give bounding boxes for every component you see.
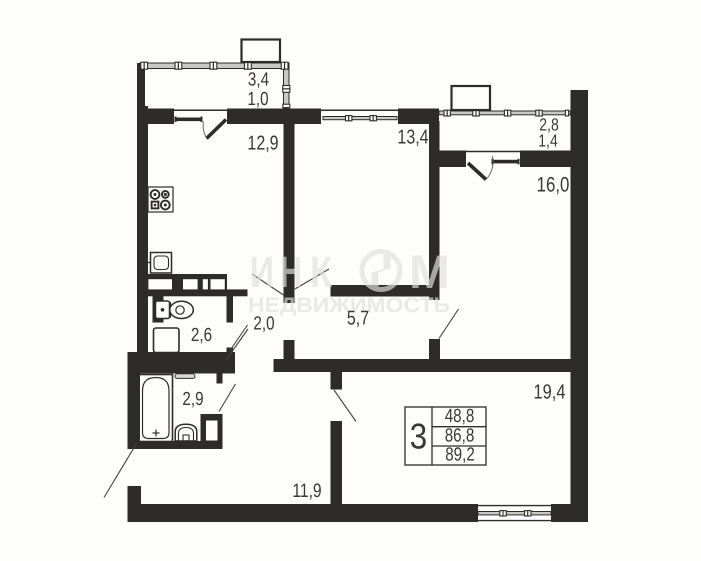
svg-text:89,2: 89,2 — [445, 445, 475, 466]
svg-text:16,0: 16,0 — [537, 174, 570, 197]
svg-text:3,4: 3,4 — [248, 70, 269, 91]
svg-text:5,7: 5,7 — [347, 308, 369, 330]
svg-text:2,0: 2,0 — [253, 314, 274, 335]
svg-text:19,4: 19,4 — [534, 381, 566, 404]
svg-text:12,9: 12,9 — [247, 133, 278, 155]
svg-text:1,0: 1,0 — [247, 89, 268, 110]
svg-text:13,4: 13,4 — [397, 127, 428, 149]
svg-text:48,8: 48,8 — [445, 406, 475, 427]
svg-text:2,9: 2,9 — [182, 389, 203, 410]
svg-text:3: 3 — [410, 416, 427, 457]
svg-text:86,8: 86,8 — [445, 426, 475, 447]
svg-text:2,6: 2,6 — [191, 325, 212, 346]
svg-text:1,4: 1,4 — [538, 131, 558, 151]
svg-text:11,9: 11,9 — [292, 480, 321, 502]
